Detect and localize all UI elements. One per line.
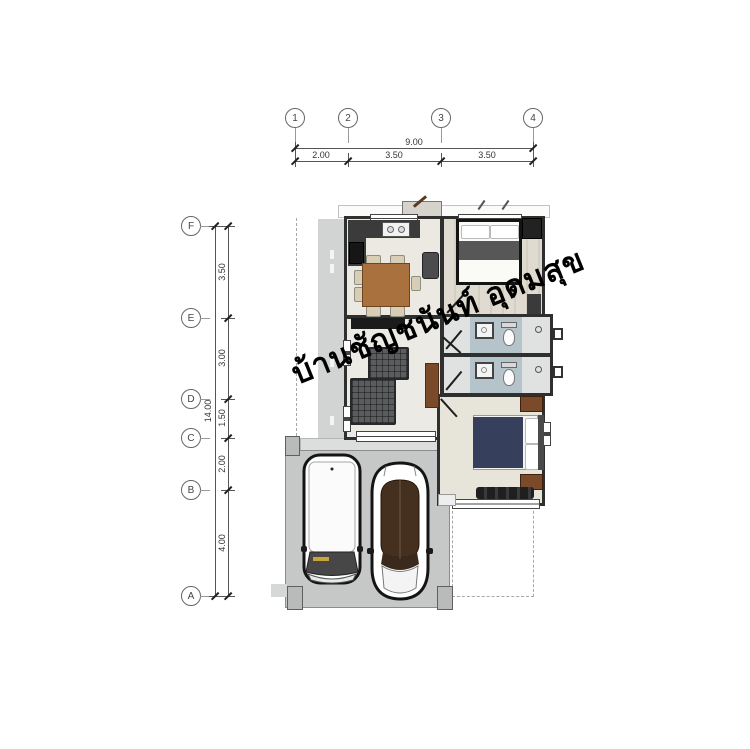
dim-line-segments-left xyxy=(228,226,229,596)
grid-label: 2 xyxy=(345,113,351,124)
dim-segment: 1.50 xyxy=(217,409,227,427)
grid-stem xyxy=(200,490,210,491)
car-sedan xyxy=(366,460,434,602)
dim-line-total-top xyxy=(295,148,533,149)
grid-label: D xyxy=(187,394,194,405)
roof-overhang-dashed-line xyxy=(296,218,297,436)
grid-bubble-row-F: F xyxy=(181,216,201,236)
floor-plan-canvas: 1 2 3 4 9.00 2.00 3.50 3.50 F E D C B A … xyxy=(0,0,750,749)
bedroom2-nightstand xyxy=(520,396,543,412)
bath1-toilet-tank xyxy=(501,322,517,328)
grid-bubble-row-E: E xyxy=(181,308,201,328)
dim-line-total-left xyxy=(215,226,216,596)
grid-bubble-col-4: 4 xyxy=(523,108,543,128)
carport-column xyxy=(437,586,453,610)
bed1-pillow xyxy=(490,225,519,239)
grid-label: F xyxy=(188,221,194,232)
grid-stem xyxy=(441,128,442,143)
bed2-headboard xyxy=(538,415,544,470)
grid-stem xyxy=(295,128,296,143)
grid-bubble-row-C: C xyxy=(181,428,201,448)
dining-table xyxy=(362,263,410,307)
walkway-marking xyxy=(330,416,334,425)
grid-stem xyxy=(533,128,534,143)
grid-stem xyxy=(348,128,349,143)
bath2-shower-drain xyxy=(535,366,542,373)
dim-segment: 3.50 xyxy=(385,150,403,160)
terrace-overhang-dashed xyxy=(452,506,534,597)
walkway-marking xyxy=(330,250,334,259)
bathroom-window-box xyxy=(553,366,563,378)
living-tv-cabinet xyxy=(425,363,439,408)
dim-segment: 2.00 xyxy=(312,150,330,160)
bath1-shower-drain xyxy=(535,326,542,333)
entry-path-stub xyxy=(271,584,287,597)
bath1-toilet-bowl xyxy=(503,329,515,346)
bath2-sink-drain xyxy=(481,367,487,373)
bed1-pillow xyxy=(461,225,490,239)
bath2-toilet-tank xyxy=(501,362,517,368)
grid-label: 3 xyxy=(438,113,444,124)
grid-stem xyxy=(200,438,210,439)
grid-bubble-col-2: 2 xyxy=(338,108,358,128)
bedroom2-shoe-rack xyxy=(476,487,534,499)
grid-label: B xyxy=(188,485,195,496)
dining-chair xyxy=(411,276,421,291)
grid-label: C xyxy=(187,433,194,444)
grid-stem xyxy=(200,318,210,319)
sink-basin xyxy=(398,226,405,233)
dim-segment: 4.00 xyxy=(217,534,227,552)
carport-column xyxy=(287,586,303,610)
dim-segment: 3.50 xyxy=(217,263,227,281)
bed2-pillow xyxy=(525,418,539,444)
bedroom2-step xyxy=(438,494,456,506)
grid-label: A xyxy=(188,591,195,602)
bedroom1-closet xyxy=(522,218,542,239)
bed2-blanket xyxy=(473,417,523,468)
grid-bubble-col-1: 1 xyxy=(285,108,305,128)
grid-bubble-col-3: 3 xyxy=(431,108,451,128)
bed1-blanket xyxy=(459,241,519,260)
van-top-view-icon xyxy=(301,452,363,588)
bath1-sink-drain xyxy=(481,327,487,333)
bath2-toilet-bowl xyxy=(503,369,515,386)
bed2-pillow xyxy=(525,444,539,470)
grid-bubble-row-D: D xyxy=(181,389,201,409)
walkway-marking xyxy=(330,264,334,273)
bathroom-window-box xyxy=(553,328,563,340)
dim-total-left: 14.00 xyxy=(203,400,213,423)
grid-bubble-row-B: B xyxy=(181,480,201,500)
dim-total-top: 9.00 xyxy=(405,137,423,147)
living-sofa xyxy=(350,378,396,425)
bedroom2-window xyxy=(452,499,540,509)
dim-segment: 3.50 xyxy=(478,150,496,160)
sink-basin xyxy=(387,226,394,233)
refrigerator xyxy=(349,242,364,264)
kitchen-armchair xyxy=(422,252,439,279)
dim-segment: 3.00 xyxy=(217,349,227,367)
dim-segment: 2.00 xyxy=(217,455,227,473)
carport-column xyxy=(285,436,300,456)
grid-label: 1 xyxy=(292,113,298,124)
living-front-window xyxy=(356,431,436,442)
car-van xyxy=(301,452,363,588)
grid-label: 4 xyxy=(530,113,536,124)
dim-line-segments-top xyxy=(295,161,533,162)
grid-label: E xyxy=(188,313,195,324)
sedan-top-view-icon xyxy=(366,460,434,602)
bedroom2-side-window xyxy=(543,422,551,446)
grid-bubble-row-A: A xyxy=(181,586,201,606)
